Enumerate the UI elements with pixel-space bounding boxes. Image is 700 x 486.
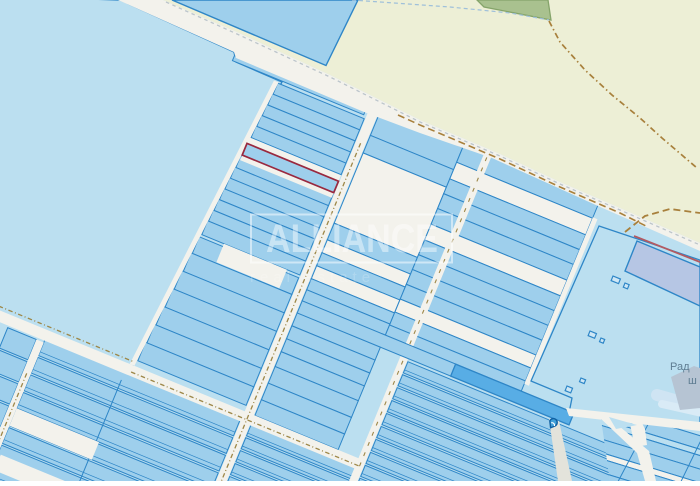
svg-text:ш: ш (688, 375, 697, 387)
svg-text:Рад: Рад (670, 361, 690, 373)
svg-text:ALLIANCE: ALLIANCE (266, 217, 438, 261)
svg-text:real estate: real estate (250, 269, 375, 286)
